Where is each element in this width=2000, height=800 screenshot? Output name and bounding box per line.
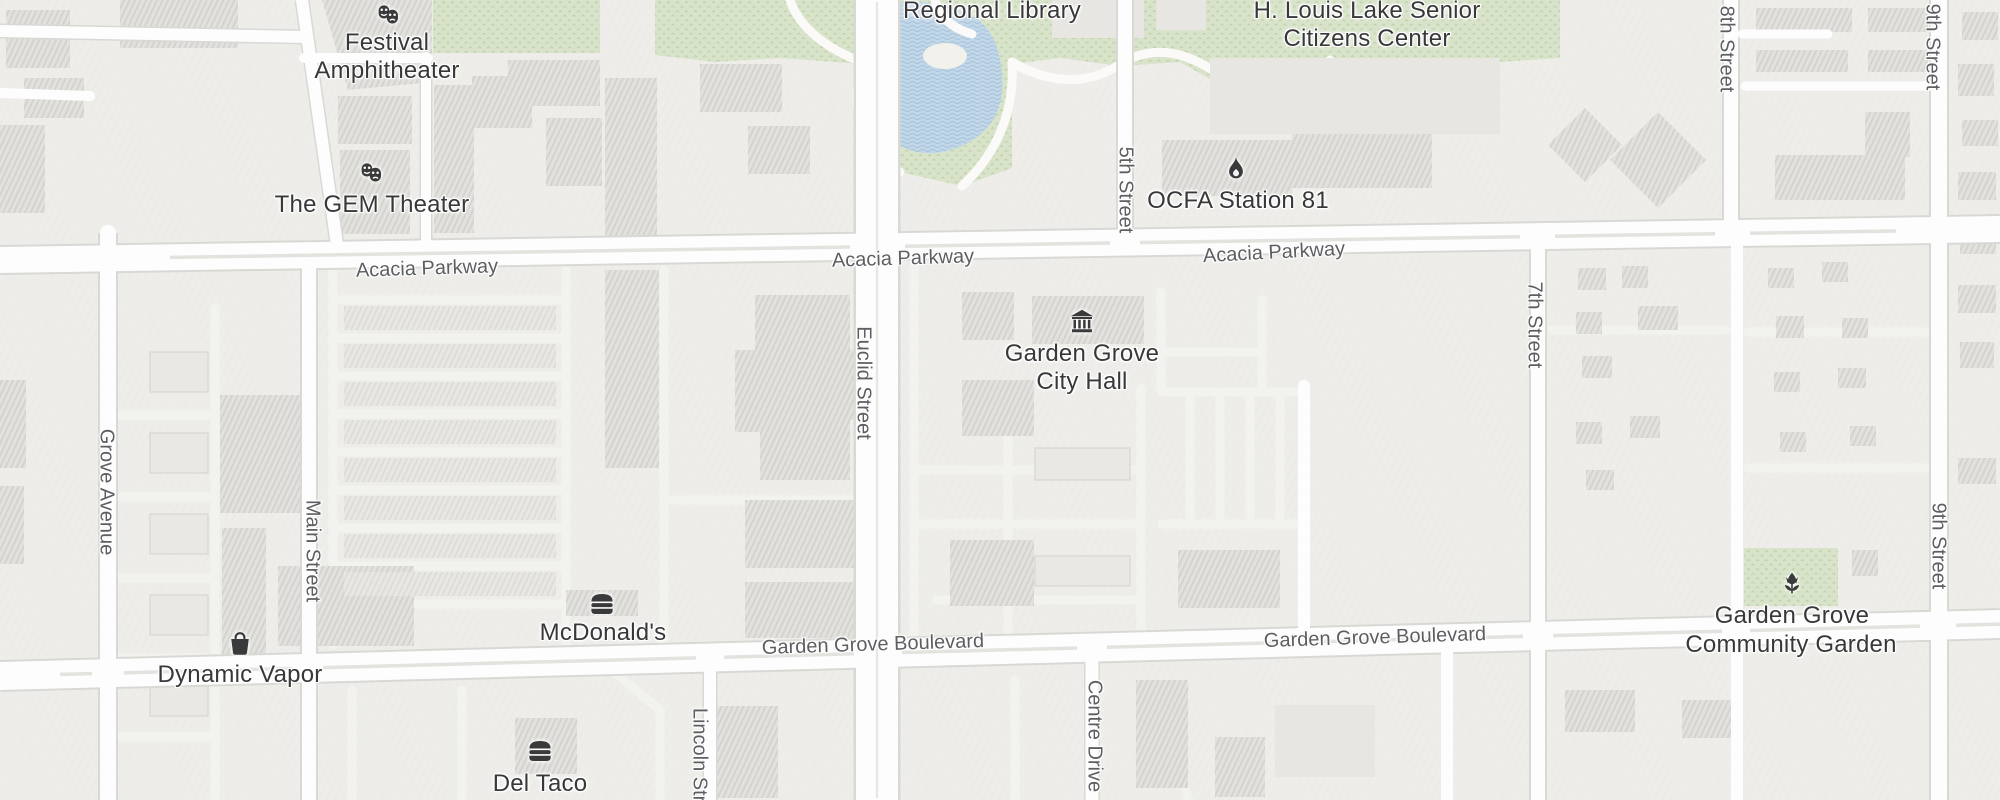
poi-label-festival-amphitheater[interactable]: Festival [345,29,429,57]
street-label-grove-avenue: Grove Avenue [95,429,118,555]
poi-label-city-hall[interactable]: City Hall [1036,368,1127,396]
poi-label-city-hall[interactable]: Garden Grove [1005,340,1159,368]
burger-icon[interactable] [587,589,617,619]
street-label-acacia-parkway: Acacia Parkway [356,255,499,282]
street-label-5th-street: 5th Street [1114,147,1137,234]
poi-label-gem-theater[interactable]: The GEM Theater [275,191,470,219]
poi-label-community-garden[interactable]: Garden Grove [1715,602,1869,630]
poi-label-community-garden[interactable]: Community Garden [1685,631,1896,659]
street-label-8th-street: 8th Street [1715,6,1738,93]
government-building-icon[interactable] [1067,306,1097,336]
burger-icon[interactable] [525,736,555,766]
street-label-main-street: Main Street [301,500,324,602]
street-label-7th-street: 7th Street [1523,282,1546,369]
poi-label-dynamic-vapor[interactable]: Dynamic Vapor [158,661,323,689]
poi-label-senior-center[interactable]: Citizens Center [1283,25,1450,53]
poi-label-mcdonalds[interactable]: McDonald's [540,619,667,647]
shopping-bag-icon[interactable] [225,629,255,659]
fire-icon[interactable] [1221,155,1251,185]
street-label-lincoln-street: Lincoln Street [688,708,711,800]
street-label-euclid-street: Euclid Street [852,326,875,439]
street-label-9th-street: 9th Street [1927,503,1950,590]
map-canvas[interactable]: Festival Amphitheater The GEM Theater Re… [0,0,2000,800]
street-label-acacia-parkway: Acacia Parkway [832,245,975,272]
street-label-9th-street: 9th Street [1921,4,1944,91]
flower-icon[interactable] [1777,569,1807,599]
poi-label-regional-library[interactable]: Regional Library [903,0,1081,25]
theater-masks-icon[interactable] [373,1,403,31]
poi-label-ocfa-station-81[interactable]: OCFA Station 81 [1147,187,1329,215]
theater-masks-icon[interactable] [356,159,386,189]
street-label-centre-drive: Centre Drive [1083,680,1106,792]
poi-label-senior-center[interactable]: H. Louis Lake Senior [1254,0,1481,25]
poi-label-festival-amphitheater[interactable]: Amphitheater [314,57,459,85]
poi-label-del-taco[interactable]: Del Taco [493,770,588,798]
